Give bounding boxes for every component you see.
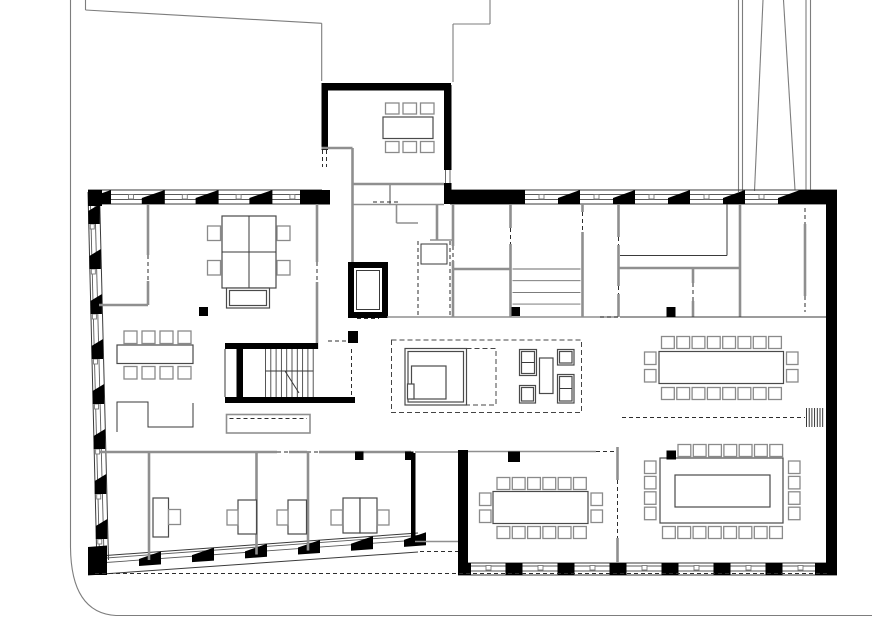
stair-wall-bottom xyxy=(225,397,355,403)
chair xyxy=(723,388,736,400)
desk xyxy=(238,500,257,534)
chair xyxy=(512,527,525,539)
chair xyxy=(677,388,690,400)
window-tick xyxy=(97,494,101,499)
conference-table xyxy=(659,352,784,384)
chair xyxy=(678,445,691,457)
window-tick xyxy=(93,359,97,364)
chair xyxy=(738,388,751,400)
desk-chair xyxy=(169,510,181,525)
window-tick xyxy=(590,566,595,571)
window-tick xyxy=(704,195,709,200)
chair xyxy=(543,478,556,490)
column xyxy=(199,307,208,316)
chair xyxy=(160,367,173,380)
window-tick xyxy=(759,195,764,200)
chair xyxy=(789,461,801,474)
chair xyxy=(421,142,435,153)
window-tick xyxy=(649,195,654,200)
chair xyxy=(142,331,155,344)
chair xyxy=(770,527,783,539)
chair xyxy=(789,492,801,505)
window-tick xyxy=(486,566,491,571)
chair xyxy=(662,388,675,400)
chair xyxy=(543,527,556,539)
chair xyxy=(753,337,766,349)
window-tick xyxy=(746,566,751,571)
desk-chair xyxy=(277,510,288,525)
annex-meeting-table xyxy=(383,117,433,139)
chair xyxy=(723,337,736,349)
desk xyxy=(153,498,169,537)
floor-plan-page xyxy=(0,0,872,643)
window-tick xyxy=(236,195,241,200)
chair xyxy=(770,445,783,457)
chair xyxy=(645,370,657,383)
chair xyxy=(124,331,137,344)
chair xyxy=(645,492,657,505)
chair xyxy=(709,445,722,457)
chair xyxy=(693,527,706,539)
desk-chair xyxy=(331,510,343,525)
window-tick xyxy=(642,566,647,571)
window-tick xyxy=(91,269,95,274)
chair xyxy=(769,337,782,349)
window-tick xyxy=(98,539,102,544)
chair xyxy=(645,507,657,520)
chair xyxy=(692,388,705,400)
corner-pier-nw xyxy=(88,190,102,206)
chair xyxy=(480,510,492,523)
g-radiator-hatch xyxy=(807,408,823,427)
chair xyxy=(739,527,752,539)
column xyxy=(348,331,358,343)
chair xyxy=(142,367,155,380)
chair xyxy=(738,337,751,349)
corner-pier-sw xyxy=(88,546,107,576)
floor-plan-drawing xyxy=(0,0,872,643)
chair xyxy=(574,478,587,490)
column xyxy=(512,307,521,316)
desk xyxy=(343,498,360,533)
window-tick xyxy=(798,566,803,571)
column xyxy=(355,452,364,461)
chair xyxy=(724,445,737,457)
chair xyxy=(512,478,525,490)
annex-wall-west xyxy=(322,83,329,150)
chair xyxy=(754,527,767,539)
conference-wall-west xyxy=(458,450,468,563)
chair xyxy=(724,527,737,539)
chair xyxy=(789,476,801,489)
desk-chair xyxy=(227,510,238,525)
chair xyxy=(386,103,400,114)
annex-wall-east-upper xyxy=(444,85,452,170)
chair xyxy=(277,226,290,241)
chair xyxy=(558,478,571,490)
chair xyxy=(678,527,691,539)
desk xyxy=(360,498,377,533)
chair xyxy=(124,367,137,380)
chair xyxy=(208,226,221,241)
chair xyxy=(497,478,510,490)
door-jamb xyxy=(508,452,520,463)
chair xyxy=(707,337,720,349)
chair xyxy=(178,331,191,344)
column xyxy=(667,307,676,317)
g-chairs-annex-top xyxy=(386,103,435,114)
west-meeting-table xyxy=(117,345,193,364)
office-wall xyxy=(411,453,416,540)
chair xyxy=(480,493,492,506)
window-tick xyxy=(290,195,295,200)
conference-table-inner xyxy=(675,475,770,507)
window-tick xyxy=(694,566,699,571)
window-tick xyxy=(129,195,134,200)
window-tick xyxy=(538,566,543,571)
chair xyxy=(421,103,435,114)
pier-annex-right-band xyxy=(445,190,525,204)
chair xyxy=(755,445,768,457)
chair xyxy=(645,476,657,489)
chair xyxy=(645,352,657,365)
chair xyxy=(662,337,675,349)
chair xyxy=(403,103,417,114)
chair xyxy=(677,337,690,349)
chair xyxy=(178,367,191,380)
stair-wall-left xyxy=(237,343,244,398)
window-tick xyxy=(594,195,599,200)
conference-table xyxy=(493,492,588,524)
window-tick xyxy=(539,195,544,200)
window-tick xyxy=(182,195,187,200)
column xyxy=(667,451,677,460)
window-tick xyxy=(90,224,94,229)
chair xyxy=(386,142,400,153)
chair xyxy=(707,388,720,400)
chair xyxy=(645,461,657,474)
chair xyxy=(160,331,173,344)
paper-background xyxy=(0,0,872,643)
window-tick xyxy=(92,314,96,319)
g-chairs-annex-bottom xyxy=(386,142,435,153)
chair xyxy=(787,352,799,365)
chair xyxy=(403,142,417,153)
annex-wall-east-lower xyxy=(444,183,452,204)
chair xyxy=(787,370,799,383)
chair xyxy=(753,388,766,400)
chair xyxy=(591,510,603,523)
window-tick xyxy=(95,404,99,409)
g-chairs-conf2-top xyxy=(678,445,783,457)
desk xyxy=(288,500,307,534)
east-wall xyxy=(826,192,837,575)
annex-wall-north xyxy=(322,83,452,91)
chair xyxy=(591,493,603,506)
chair xyxy=(574,527,587,539)
pier-annex-left xyxy=(300,190,330,205)
chair xyxy=(277,261,290,276)
chair xyxy=(558,527,571,539)
chair xyxy=(208,261,221,276)
coffee-table xyxy=(540,358,554,394)
chair xyxy=(528,527,541,539)
chair xyxy=(739,445,752,457)
desk-chair xyxy=(378,510,390,525)
chair xyxy=(692,337,705,349)
chair xyxy=(769,388,782,400)
chair xyxy=(497,527,510,539)
chair xyxy=(708,527,721,539)
chair xyxy=(528,478,541,490)
chair xyxy=(789,507,801,520)
chair xyxy=(693,445,706,457)
chair xyxy=(663,527,676,539)
